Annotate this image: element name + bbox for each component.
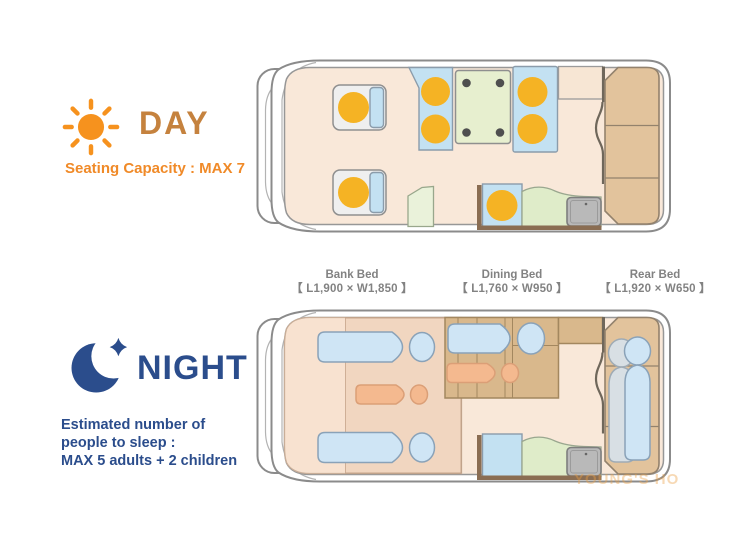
adult-sleeper [318,433,435,463]
bed-dimensions: 【 L1,900 × W1,850 】 [272,282,432,296]
kitchen-seat [483,184,523,227]
kitchen-sink [567,198,601,227]
bank-bed-label: Bank Bed 【 L1,900 × W1,850 】 [272,269,432,296]
passenger-seat [333,170,386,215]
bed-name: Bank Bed [272,269,432,282]
night-description-line: Estimated number of [61,416,237,434]
cabinet-edge [477,435,482,479]
overhead-cabinet [559,318,603,344]
rear-bed-cabinet [605,68,659,225]
child-sleeper [447,364,519,383]
night-description-line: people to sleep : [61,434,237,452]
child-sleeper [356,385,428,404]
bed-name: Dining Bed [432,269,592,282]
adult-sleeper [318,332,435,362]
day-title: DAY [139,105,210,142]
bed-dimensions: 【 L1,920 × W650 】 [575,282,735,296]
day-seating-capacity: Seating Capacity : MAX 7 [52,160,258,177]
adult-sleeper [625,337,651,460]
night-description: Estimated number of people to sleep : MA… [61,416,237,470]
dining-bed-label: Dining Bed 【 L1,760 × W950 】 [432,269,592,296]
cabinet-front-edge [477,226,602,231]
night-description-line: MAX 5 adults + 2 children [61,452,237,470]
moon-icon [70,336,132,394]
overhead-cabinet [559,67,603,100]
night-floorplan [258,311,671,482]
cabinet-edge [477,185,482,229]
kitchen-seat [483,434,523,477]
bed-dimensions: 【 L1,760 × W950 】 [432,282,592,296]
sun-icon [62,98,120,156]
rear-bed-label: Rear Bed 【 L1,920 × W650 】 [575,269,735,296]
camper-floorplan-page: DAY Seating Capacity : MAX 7 NIGHT Estim… [0,0,750,542]
night-title: NIGHT [137,349,248,388]
adult-sleeper [448,323,545,354]
driver-seat [333,85,386,130]
watermark: YOUNG'S HO [574,471,679,488]
day-floorplan [258,61,671,232]
dinette-right-bench [513,67,558,153]
bed-name: Rear Bed [575,269,735,282]
dinette-table [456,71,511,144]
